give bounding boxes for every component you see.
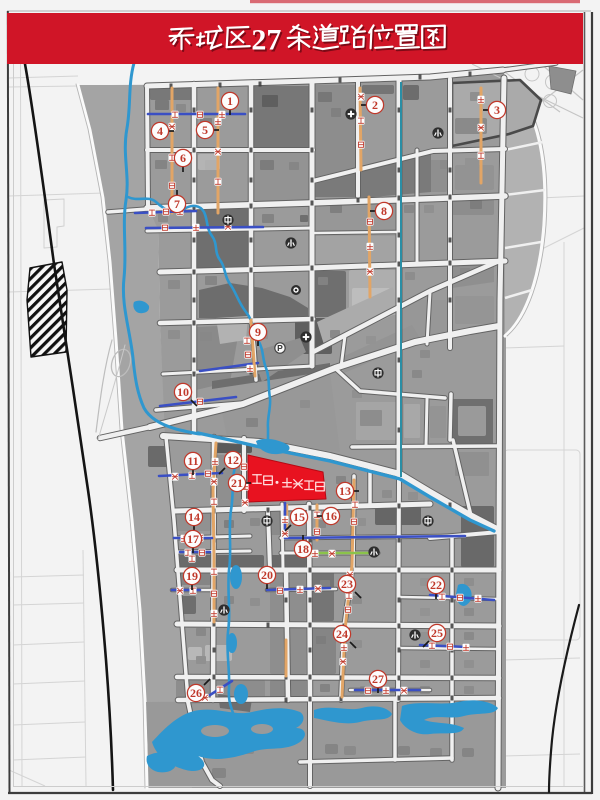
svg-text:27: 27 bbox=[251, 24, 281, 57]
svg-text:26: 26 bbox=[190, 686, 202, 700]
svg-text:17: 17 bbox=[187, 532, 199, 546]
svg-text:13: 13 bbox=[339, 484, 351, 498]
svg-text:20: 20 bbox=[261, 568, 273, 582]
svg-text:24: 24 bbox=[336, 627, 348, 641]
svg-text:23: 23 bbox=[341, 577, 353, 591]
svg-text:3: 3 bbox=[494, 103, 500, 117]
svg-text:16: 16 bbox=[325, 509, 337, 523]
svg-text:10: 10 bbox=[177, 385, 189, 399]
svg-text:21: 21 bbox=[231, 476, 243, 490]
svg-text:15: 15 bbox=[293, 510, 305, 524]
svg-text:9: 9 bbox=[255, 325, 261, 339]
svg-text:8: 8 bbox=[381, 204, 387, 218]
svg-text:11: 11 bbox=[187, 454, 198, 468]
svg-text:25: 25 bbox=[431, 626, 443, 640]
svg-text:22: 22 bbox=[430, 578, 442, 592]
svg-text:14: 14 bbox=[188, 510, 200, 524]
svg-text:19: 19 bbox=[186, 569, 198, 583]
svg-text:2: 2 bbox=[372, 98, 378, 112]
svg-text:P: P bbox=[277, 343, 283, 353]
svg-text:1: 1 bbox=[227, 94, 233, 108]
svg-text:4: 4 bbox=[157, 124, 163, 138]
svg-text:7: 7 bbox=[174, 197, 180, 211]
svg-text:6: 6 bbox=[180, 151, 186, 165]
svg-text:12: 12 bbox=[227, 453, 239, 467]
svg-text:5: 5 bbox=[202, 123, 208, 137]
svg-text:27: 27 bbox=[372, 672, 384, 686]
svg-text:18: 18 bbox=[297, 542, 309, 556]
